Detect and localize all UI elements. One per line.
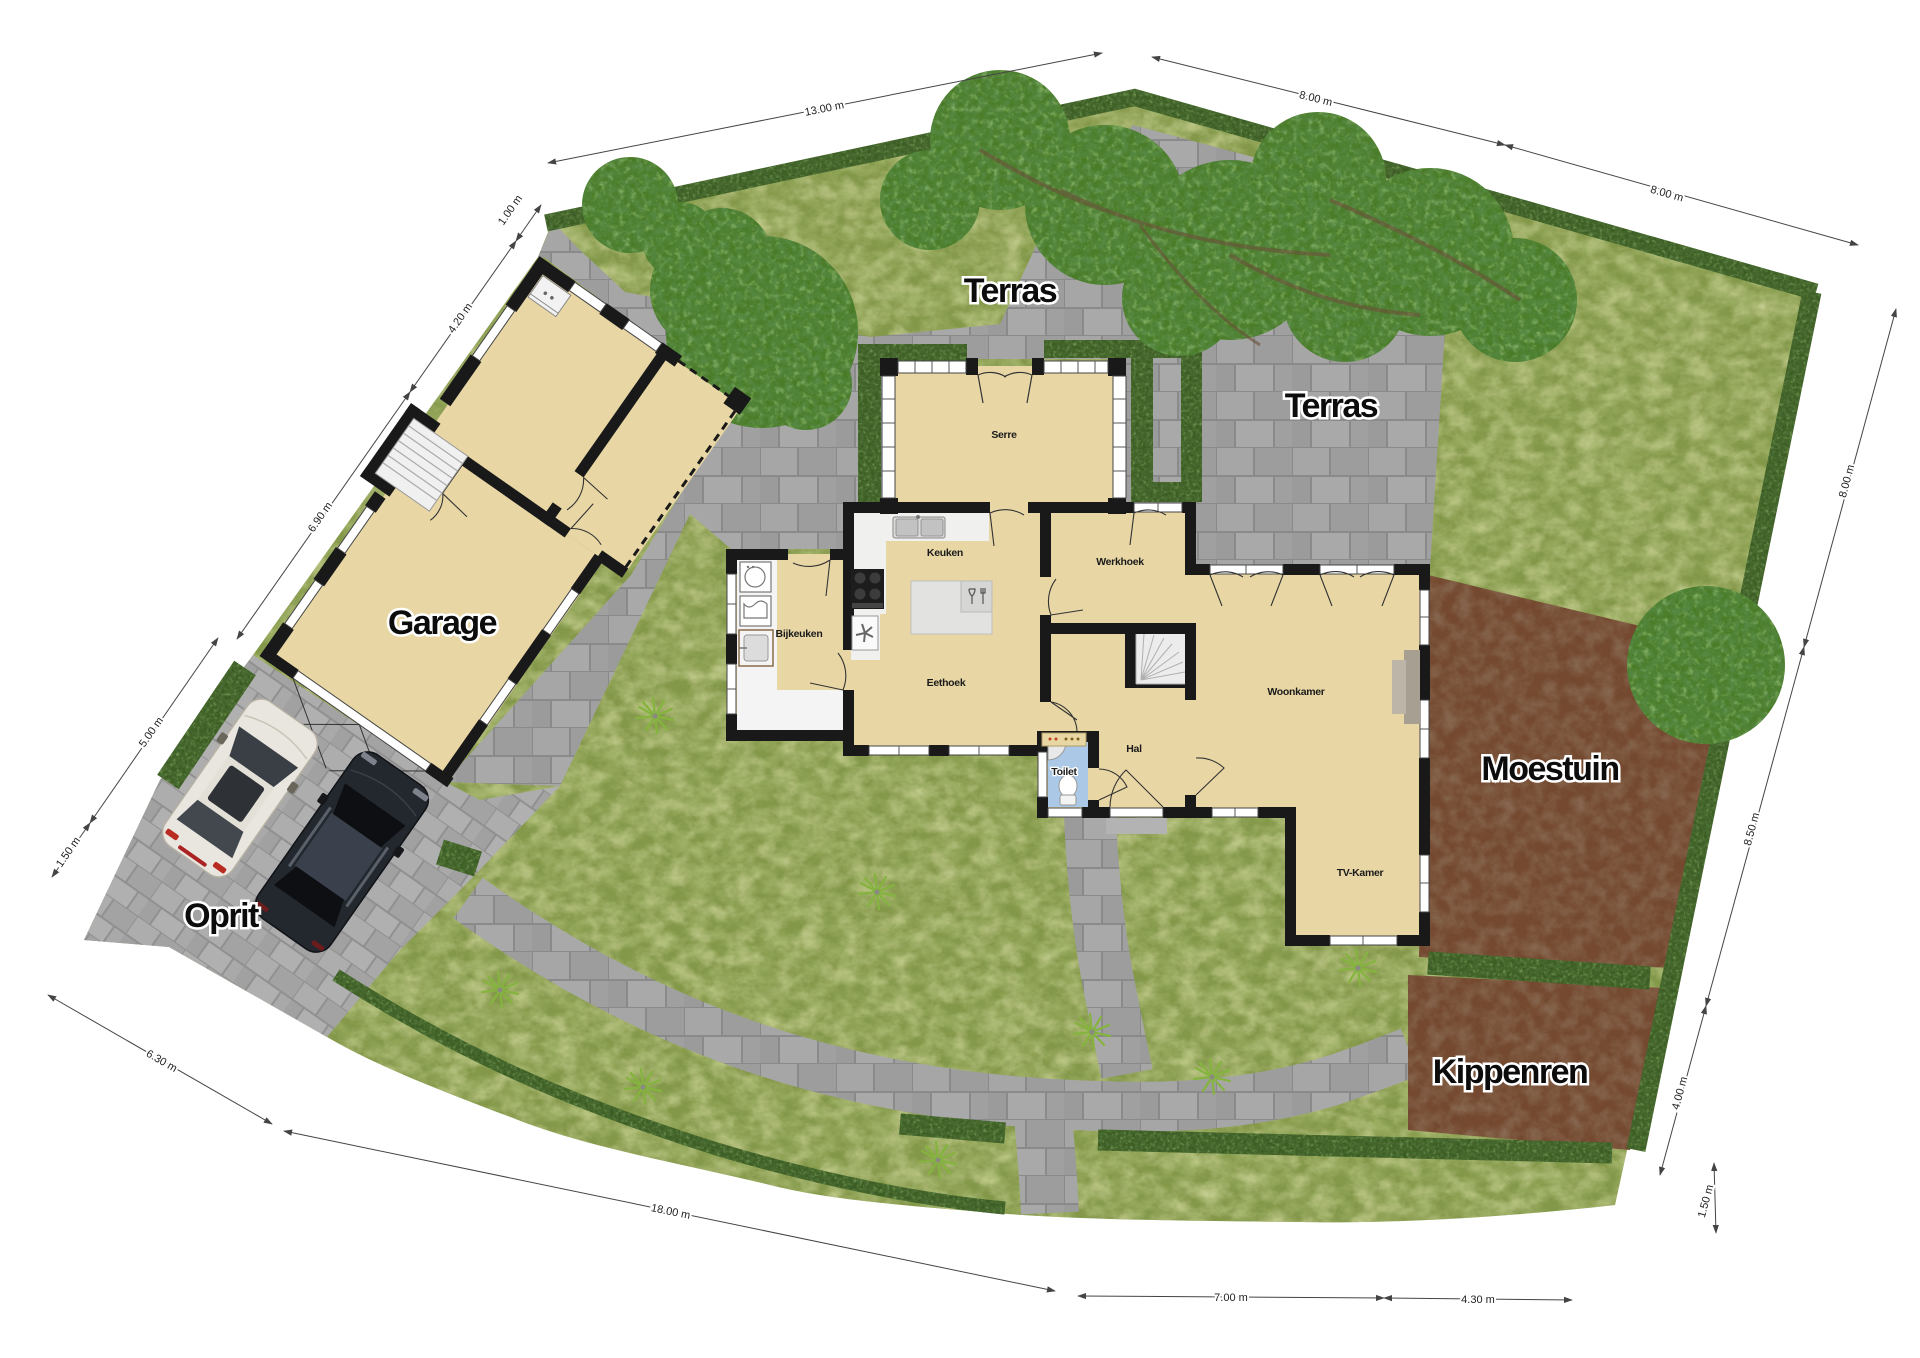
- svg-text:Terras: Terras: [964, 272, 1057, 310]
- svg-text:Garage: Garage: [388, 604, 497, 642]
- svg-text:8.00 m: 8.00 m: [1649, 184, 1685, 205]
- svg-text:8.00 m: 8.00 m: [1837, 463, 1857, 499]
- svg-text:Terras: Terras: [1285, 387, 1378, 425]
- svg-text:Moestuin: Moestuin: [1481, 750, 1618, 788]
- svg-text:1.50 m: 1.50 m: [1696, 1183, 1716, 1219]
- svg-text:6.90 m: 6.90 m: [306, 500, 335, 534]
- svg-text:Keuken: Keuken: [927, 547, 963, 559]
- svg-text:4.00 m: 4.00 m: [1670, 1075, 1690, 1111]
- svg-text:Toilet: Toilet: [1051, 766, 1077, 778]
- svg-text:6.30 m: 6.30 m: [144, 1048, 179, 1075]
- svg-text:Kippenren: Kippenren: [1433, 1053, 1588, 1091]
- svg-text:8.50 m: 8.50 m: [1742, 811, 1762, 847]
- svg-text:18.00 m: 18.00 m: [650, 1202, 691, 1222]
- svg-text:Woonkamer: Woonkamer: [1267, 686, 1324, 698]
- svg-text:1.50 m: 1.50 m: [54, 835, 83, 869]
- svg-text:7.00 m: 7.00 m: [1214, 1292, 1248, 1304]
- svg-text:1.00 m: 1.00 m: [496, 193, 525, 227]
- svg-text:Bijkeuken: Bijkeuken: [776, 628, 823, 640]
- svg-text:4.30 m: 4.30 m: [1461, 1294, 1495, 1306]
- svg-text:4.20 m: 4.20 m: [446, 301, 475, 335]
- svg-text:TV-Kamer: TV-Kamer: [1337, 867, 1384, 879]
- svg-text:Oprit: Oprit: [184, 897, 259, 935]
- svg-text:8.00 m: 8.00 m: [1298, 89, 1334, 109]
- svg-text:Werkhoek: Werkhoek: [1096, 556, 1144, 568]
- svg-text:13.00 m: 13.00 m: [804, 99, 845, 118]
- svg-text:Serre: Serre: [991, 429, 1017, 441]
- svg-text:Eethoek: Eethoek: [927, 677, 966, 689]
- svg-text:Hal: Hal: [1126, 743, 1142, 755]
- svg-text:5.00 m: 5.00 m: [137, 715, 166, 749]
